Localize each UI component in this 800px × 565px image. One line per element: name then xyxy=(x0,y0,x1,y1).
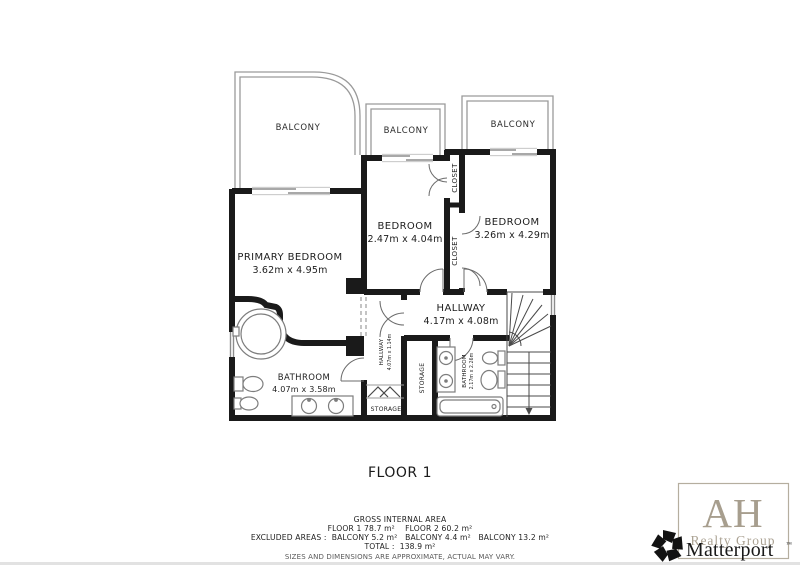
gross-internal-area-heading: GROSS INTERNAL AREA xyxy=(354,515,447,524)
closet-top-label: CLOSET xyxy=(451,163,459,193)
window-bedroom-right xyxy=(490,148,537,156)
window-bedroom-middle xyxy=(382,154,433,162)
bedroom-middle-label: BEDROOM xyxy=(378,221,433,232)
bathtub-drain xyxy=(492,405,496,409)
bedroom-right-label: BEDROOM xyxy=(485,217,540,228)
excluded-areas-line: EXCLUDED AREAS : BALCONY 5.2 m² BALCONY … xyxy=(251,533,549,542)
hallway-small-label: HALLWAY xyxy=(379,338,385,365)
primary-bedroom-dims: 3.62m x 4.95m xyxy=(252,265,327,276)
total-area-line: TOTAL : 138.9 m² xyxy=(363,542,435,551)
matterport-trademark: ™ xyxy=(786,542,792,548)
toilet-bowl xyxy=(243,377,263,392)
bathroom-label: BATHROOM xyxy=(278,373,330,383)
sink-tap xyxy=(445,357,447,359)
stairs-direction-arrow xyxy=(526,408,533,415)
primary-bedroom-label: PRIMARY BEDROOM xyxy=(237,252,342,263)
bidet-base xyxy=(498,351,505,365)
hallway-label: HALLWAY xyxy=(437,303,486,314)
bidet-bowl xyxy=(240,397,258,410)
sink-tap xyxy=(445,380,447,382)
footer-area-summary: GROSS INTERNAL AREA FLOOR 1 78.7 m² FLOO… xyxy=(251,515,549,561)
bathtub-inner xyxy=(440,400,500,413)
balcony-right-label: BALCONY xyxy=(491,120,536,130)
bidet-bowl xyxy=(483,352,498,364)
window-primary xyxy=(252,187,330,195)
bathroom-dims: 4.07m x 3.58m xyxy=(272,385,336,394)
balcony-left-inner-wall xyxy=(240,77,355,190)
hallway-small-dims: 4.07m x 1.14m xyxy=(387,333,393,370)
floor-title: FLOOR 1 xyxy=(368,465,432,481)
staircase xyxy=(507,292,551,417)
bedroom-middle-dims: 2.47m x 4.04m xyxy=(367,234,442,245)
closet-bottom-label: CLOSET xyxy=(451,236,459,266)
balcony-left-label: BALCONY xyxy=(276,123,321,133)
window-stairs-right xyxy=(549,295,557,315)
floor-plan-page: BALCONY BALCONY BALCONY PRIMARY BEDROOM … xyxy=(0,0,800,565)
bathroom-small-dims: 2.17m x 2.26m xyxy=(469,352,475,389)
ah-initials: AH xyxy=(702,490,763,536)
bedroom-right-dims: 3.26m x 4.29m xyxy=(474,230,549,241)
storage-side-label: STORAGE xyxy=(419,363,426,394)
wall-block xyxy=(346,336,364,356)
wall-block xyxy=(346,278,364,294)
toilet-bowl xyxy=(481,371,497,390)
disclaimer-line: SIZES AND DIMENSIONS ARE APPROXIMATE, AC… xyxy=(285,553,515,561)
round-tub-inner xyxy=(241,314,281,354)
balcony-middle-label: BALCONY xyxy=(384,126,429,136)
matterport-wordmark: Matterport xyxy=(686,539,774,561)
storage-bottom-label: STORAGE xyxy=(371,406,402,413)
hallway-dims: 4.17m x 4.08m xyxy=(423,316,498,327)
tub-tap xyxy=(233,327,239,336)
sink-tap xyxy=(308,399,311,402)
toilet-tank xyxy=(234,377,243,391)
toilet-tank xyxy=(498,371,505,388)
floor-plan-canvas: BALCONY BALCONY BALCONY PRIMARY BEDROOM … xyxy=(0,0,800,565)
room-labels: BALCONY BALCONY BALCONY PRIMARY BEDROOM … xyxy=(237,120,549,413)
sink-tap xyxy=(335,399,338,402)
bathroom-small-label: BATHROOM xyxy=(462,354,468,387)
floor-areas-line: FLOOR 1 78.7 m² FLOOR 2 60.2 m² xyxy=(328,524,473,533)
